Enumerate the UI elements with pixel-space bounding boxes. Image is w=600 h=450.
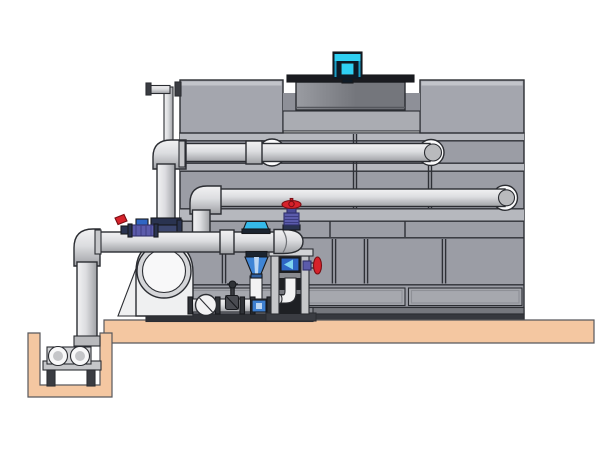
gate-valve-wheel [229,281,236,288]
vent-pipe-horizontal [150,86,170,94]
sump-pump-hub [75,351,85,361]
concrete-slab [104,320,594,343]
valve-end-cap [154,224,158,237]
sump-pump-hub [53,351,63,361]
top-left-highlight [182,82,282,86]
valve-bonnet [303,261,311,270]
vent-pipe-cap [146,83,151,95]
pipe-end-dome [274,230,303,254]
tower-rail [180,164,524,172]
pipe-coupling [246,141,262,164]
pump-inlet-face [143,250,186,293]
sump-stand-leg [87,370,95,386]
frame-post [271,256,279,314]
fan-motor [333,52,362,83]
pipe-coupling [220,230,234,254]
pipe-end-cap [425,144,442,161]
cowl-body [296,82,405,110]
suction-pipe-run [92,232,278,252]
cooling-tower-piping-diagram [0,0,600,450]
flange-bar [240,297,245,314]
frame-rung [279,273,301,278]
tower-top-left-panel [180,80,283,133]
vent-pipe-vertical [164,87,173,144]
device-collar [251,274,262,278]
device-band [246,252,267,258]
elbow-collar [179,141,185,167]
valve-flange [283,225,300,230]
tower-rail [180,134,524,141]
flange-bar [188,297,193,314]
device-cap-band [242,229,270,234]
pipe-run [218,189,505,207]
diagram-stage [0,0,600,450]
pipe-run [180,144,430,162]
fitting-window [256,303,262,309]
globe-valve-top [282,199,301,231]
vent-pipe-bracket [175,82,181,96]
motor-top-band [335,54,361,61]
riser-pipe [157,164,175,220]
motor-face-window [341,63,354,75]
down-pipe [77,262,97,338]
elbow-collar [95,230,101,254]
tower-rail [180,210,524,222]
top-right-highlight [422,82,523,86]
valve-end-cap [128,224,132,237]
handwheel-hub [289,201,294,206]
motor-edge [335,61,337,77]
red-handwheel-icon [314,257,322,274]
motor-edge [359,61,361,77]
control-valve-body [130,225,156,236]
pipe-union [74,336,100,346]
tower-top-right-panel [420,80,524,133]
sump-stand-leg [47,370,55,386]
pipe-end-cap [499,190,515,206]
fan-recess-panel [283,111,420,131]
